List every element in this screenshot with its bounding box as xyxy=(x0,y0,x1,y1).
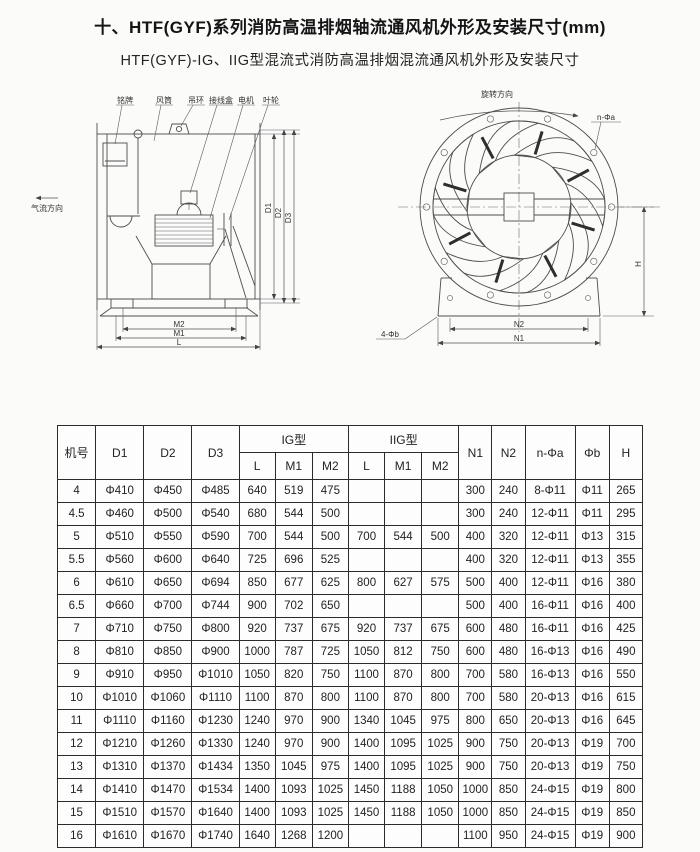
table-cell: 400 xyxy=(459,526,492,549)
table-cell: 12-Φ11 xyxy=(525,503,575,526)
bolt-holes-label: n-Φa xyxy=(597,113,615,122)
table-cell: 575 xyxy=(422,572,459,595)
table-cell: Φ1640 xyxy=(192,802,239,825)
table-cell: 900 xyxy=(312,710,348,733)
table-cell: 519 xyxy=(275,480,312,503)
table-row: 6Φ610Φ650Φ69485067762580062757550040012-… xyxy=(58,572,643,595)
table-cell: 6.5 xyxy=(58,595,96,618)
table-cell: 680 xyxy=(239,503,275,526)
table-cell: Φ1610 xyxy=(96,825,144,848)
table-cell: 650 xyxy=(312,595,348,618)
table-cell: Φ19 xyxy=(575,733,609,756)
table-row: 4.5Φ460Φ500Φ54068054450030024012-Φ11Φ112… xyxy=(58,503,643,526)
table-cell: Φ485 xyxy=(192,480,239,503)
page-title: 十、HTF(GYF)系列消防高温排烟轴流通风机外形及安装尺寸(mm) xyxy=(0,0,700,38)
diameter-dimensions: D1 D2 D3 xyxy=(255,130,300,303)
col-d3: D3 xyxy=(192,426,239,480)
table-cell: Φ660 xyxy=(96,595,144,618)
table-cell xyxy=(422,480,459,503)
center-lines xyxy=(398,102,660,332)
table-cell: 1050 xyxy=(422,779,459,802)
table-cell: Φ1010 xyxy=(192,664,239,687)
table-cell: 920 xyxy=(348,618,384,641)
table-cell: 500 xyxy=(459,572,492,595)
table-cell: 1100 xyxy=(348,664,384,687)
table-cell: 750 xyxy=(312,664,348,687)
table-cell: 737 xyxy=(275,618,312,641)
table-cell: 615 xyxy=(609,687,642,710)
table-cell: 1045 xyxy=(385,710,422,733)
table-cell: 490 xyxy=(609,641,642,664)
nameplate-label: 铭牌 xyxy=(117,95,133,105)
table-cell: 970 xyxy=(275,710,312,733)
table-cell: Φ700 xyxy=(144,595,192,618)
col-h: H xyxy=(609,426,642,480)
dim-l: L xyxy=(177,338,182,347)
table-cell: 1350 xyxy=(239,756,275,779)
dim-h: H xyxy=(634,261,643,267)
col-iig-m2: M2 xyxy=(422,453,459,480)
table-cell: 500 xyxy=(312,503,348,526)
foot-hole-callout: 4-Φb xyxy=(376,317,437,339)
table-cell: 1200 xyxy=(312,825,348,848)
table-cell: 550 xyxy=(609,664,642,687)
table-cell: 8 xyxy=(58,641,96,664)
table-cell: Φ410 xyxy=(96,480,144,503)
col-ig-m1: M1 xyxy=(275,453,312,480)
table-cell: 12 xyxy=(58,733,96,756)
table-cell: 425 xyxy=(609,618,642,641)
dim-m2: M2 xyxy=(173,320,185,329)
airflow-direction: 气流方向 xyxy=(31,198,63,213)
table-cell: 1100 xyxy=(348,687,384,710)
table-cell: Φ850 xyxy=(144,641,192,664)
table-cell: 16-Φ11 xyxy=(525,618,575,641)
col-ig-m2: M2 xyxy=(312,453,348,480)
table-cell: 400 xyxy=(459,549,492,572)
col-n2: N2 xyxy=(492,426,525,480)
table-cell: 24-Φ15 xyxy=(525,825,575,848)
table-cell: Φ810 xyxy=(96,641,144,664)
table-cell xyxy=(348,825,384,848)
table-cell xyxy=(348,480,384,503)
table-cell: 4.5 xyxy=(58,503,96,526)
table-cell: 13 xyxy=(58,756,96,779)
table-cell: 677 xyxy=(275,572,312,595)
table-cell: 20-Φ13 xyxy=(525,710,575,733)
col-d2: D2 xyxy=(144,426,192,480)
length-dimensions: M2 M1 L xyxy=(97,308,260,350)
table-cell: 320 xyxy=(492,549,525,572)
table-cell xyxy=(385,595,422,618)
col-iig-m1: M1 xyxy=(385,453,422,480)
table-cell: Φ1210 xyxy=(96,733,144,756)
table-cell: Φ640 xyxy=(192,549,239,572)
airflow-label: 气流方向 xyxy=(31,203,63,213)
table-cell: 20-Φ13 xyxy=(525,756,575,779)
table-cell: Φ910 xyxy=(96,664,144,687)
table-cell: 1025 xyxy=(422,756,459,779)
col-d1: D1 xyxy=(96,426,144,480)
diffuser-cone xyxy=(225,226,255,298)
dim-d1: D1 xyxy=(264,202,273,213)
table-cell: 675 xyxy=(422,618,459,641)
table-cell xyxy=(422,549,459,572)
table-cell: 1000 xyxy=(239,641,275,664)
table-cell: Φ1434 xyxy=(192,756,239,779)
table-row: 14Φ1410Φ1470Φ153414001093102514501188105… xyxy=(58,779,643,802)
table-body: 4Φ410Φ450Φ4856405194753002408-Φ11Φ112654… xyxy=(58,480,643,848)
impeller-label: 叶轮 xyxy=(263,95,279,105)
table-cell: Φ600 xyxy=(144,549,192,572)
table-cell: Φ694 xyxy=(192,572,239,595)
table-cell: 544 xyxy=(385,526,422,549)
table-cell: 1000 xyxy=(459,802,492,825)
table-cell: 737 xyxy=(385,618,422,641)
table-cell: Φ1160 xyxy=(144,710,192,733)
table-row: 11Φ1110Φ1160Φ123012409709001340104597580… xyxy=(58,710,643,733)
table-cell: 1340 xyxy=(348,710,384,733)
fan-casing xyxy=(97,123,260,310)
table-cell: 650 xyxy=(492,710,525,733)
table-cell: 700 xyxy=(459,664,492,687)
table-cell: 1240 xyxy=(239,733,275,756)
table-cell: 400 xyxy=(609,595,642,618)
table-cell: 800 xyxy=(312,687,348,710)
table-cell: Φ1260 xyxy=(144,733,192,756)
table-cell: Φ19 xyxy=(575,779,609,802)
table-cell: Φ1060 xyxy=(144,687,192,710)
table-cell: 700 xyxy=(609,733,642,756)
table-row: 12Φ1210Φ1260Φ133012409709001400109510259… xyxy=(58,733,643,756)
table-cell: Φ11 xyxy=(575,503,609,526)
table-cell: 12-Φ11 xyxy=(525,549,575,572)
table-cell: 700 xyxy=(348,526,384,549)
table-cell: 20-Φ13 xyxy=(525,733,575,756)
table-cell: 14 xyxy=(58,779,96,802)
table-cell: 544 xyxy=(275,503,312,526)
table-cell xyxy=(422,595,459,618)
table-cell: 900 xyxy=(312,733,348,756)
table-cell xyxy=(422,825,459,848)
table-cell xyxy=(348,549,384,572)
table-cell: 1188 xyxy=(385,779,422,802)
table-cell: Φ1010 xyxy=(96,687,144,710)
table-cell: 1025 xyxy=(422,733,459,756)
table-cell xyxy=(385,825,422,848)
table-cell: 480 xyxy=(492,641,525,664)
duct-label: 风筒 xyxy=(156,95,172,105)
table-cell: 1025 xyxy=(312,802,348,825)
table-cell: 600 xyxy=(459,641,492,664)
table-cell: Φ1410 xyxy=(96,779,144,802)
table-row: 4Φ410Φ450Φ4856405194753002408-Φ11Φ11265 xyxy=(58,480,643,503)
height-dimension: H xyxy=(603,207,654,316)
table-cell: 850 xyxy=(609,802,642,825)
lifting-lug xyxy=(134,124,189,138)
table-cell: 702 xyxy=(275,595,312,618)
dim-d3: D3 xyxy=(284,212,293,223)
table-cell: 1093 xyxy=(275,802,312,825)
col-machine-no: 机号 xyxy=(58,426,96,480)
table-cell: 9 xyxy=(58,664,96,687)
table-cell: 500 xyxy=(422,526,459,549)
table-cell: 970 xyxy=(275,733,312,756)
table-row: 8Φ810Φ850Φ900100078772510508127506004801… xyxy=(58,641,643,664)
table-cell: 1093 xyxy=(275,779,312,802)
table-cell: Φ1534 xyxy=(192,779,239,802)
table-cell: 16-Φ11 xyxy=(525,595,575,618)
table-cell: Φ16 xyxy=(575,572,609,595)
table-cell: 870 xyxy=(275,687,312,710)
table-cell: 15 xyxy=(58,802,96,825)
table-cell: Φ560 xyxy=(96,549,144,572)
table-cell: 8-Φ11 xyxy=(525,480,575,503)
table-cell: 900 xyxy=(609,825,642,848)
front-view-drawing: 旋转方向 xyxy=(358,86,700,368)
base-dimensions: N2 N1 xyxy=(438,318,600,346)
table-cell: 750 xyxy=(609,756,642,779)
rotation-label: 旋转方向 xyxy=(481,89,513,99)
dim-n1: N1 xyxy=(514,334,525,343)
junction-box-label: 接线盒 xyxy=(209,95,233,105)
table-cell: 24-Φ15 xyxy=(525,779,575,802)
table-cell: 380 xyxy=(609,572,642,595)
table-cell: 16-Φ13 xyxy=(525,664,575,687)
table-cell xyxy=(385,480,422,503)
table-cell: 900 xyxy=(459,756,492,779)
table-cell: 900 xyxy=(459,733,492,756)
support-base xyxy=(100,236,258,316)
table-cell: 725 xyxy=(312,641,348,664)
table-cell: Φ19 xyxy=(575,825,609,848)
table-cell: 1268 xyxy=(275,825,312,848)
table-cell: 544 xyxy=(275,526,312,549)
table-cell: 1000 xyxy=(459,779,492,802)
table-cell: Φ1230 xyxy=(192,710,239,733)
table-cell: Φ950 xyxy=(144,664,192,687)
table-cell: 870 xyxy=(385,687,422,710)
table-cell: 1400 xyxy=(348,756,384,779)
table-cell: 12-Φ11 xyxy=(525,526,575,549)
table-cell: 1050 xyxy=(348,641,384,664)
table-cell: 950 xyxy=(492,825,525,848)
table-row: 9Φ910Φ950Φ101010508207501100870800700580… xyxy=(58,664,643,687)
table-cell: 355 xyxy=(609,549,642,572)
table-cell: Φ1570 xyxy=(144,802,192,825)
table-cell: Φ16 xyxy=(575,710,609,733)
table-cell: 24-Φ15 xyxy=(525,802,575,825)
table-cell: 625 xyxy=(312,572,348,595)
table-cell: 640 xyxy=(239,480,275,503)
table-cell: Φ1310 xyxy=(96,756,144,779)
table-cell: 1400 xyxy=(348,733,384,756)
table-cell: 1450 xyxy=(348,779,384,802)
side-view-drawing: 铭牌 风筒 吊环 接线盒 电机 叶轮 xyxy=(28,86,360,368)
table-cell: 5 xyxy=(58,526,96,549)
table-cell: 800 xyxy=(422,687,459,710)
table-row: 13Φ1310Φ1370Φ143413501045975140010951025… xyxy=(58,756,643,779)
table-cell: Φ650 xyxy=(144,572,192,595)
table-cell xyxy=(348,503,384,526)
table-cell: 4 xyxy=(58,480,96,503)
table-cell: Φ1370 xyxy=(144,756,192,779)
table-cell: 1100 xyxy=(459,825,492,848)
table-cell: 500 xyxy=(459,595,492,618)
table-cell xyxy=(385,549,422,572)
table-cell: Φ550 xyxy=(144,526,192,549)
dim-n2: N2 xyxy=(514,320,525,329)
table-cell: Φ710 xyxy=(96,618,144,641)
table-cell: 750 xyxy=(492,733,525,756)
table-row: 5.5Φ560Φ600Φ64072569652540032012-Φ11Φ133… xyxy=(58,549,643,572)
table-cell: 645 xyxy=(609,710,642,733)
table-cell: 900 xyxy=(239,595,275,618)
table-cell: 240 xyxy=(492,503,525,526)
table-cell: 580 xyxy=(492,664,525,687)
table-row: 16Φ1610Φ1670Φ1740164012681200110095024-Φ… xyxy=(58,825,643,848)
drawings-row: 铭牌 风筒 吊环 接线盒 电机 叶轮 xyxy=(0,86,700,368)
table-cell: 300 xyxy=(459,503,492,526)
table-cell: 850 xyxy=(239,572,275,595)
table-cell: 1400 xyxy=(239,779,275,802)
table-cell: Φ450 xyxy=(144,480,192,503)
table-cell: Φ590 xyxy=(192,526,239,549)
table-cell: Φ16 xyxy=(575,664,609,687)
table-cell: 480 xyxy=(492,618,525,641)
col-n1: N1 xyxy=(459,426,492,480)
table-cell: Φ500 xyxy=(144,503,192,526)
table-cell: 850 xyxy=(492,779,525,802)
table-cell: 5.5 xyxy=(58,549,96,572)
col-iig-l: L xyxy=(348,453,384,480)
motor xyxy=(155,203,213,246)
table-row: 7Φ710Φ750Φ80092073767592073767560048016-… xyxy=(58,618,643,641)
table-cell: Φ610 xyxy=(96,572,144,595)
col-phi-b: Φb xyxy=(575,426,609,480)
table-cell: 1640 xyxy=(239,825,275,848)
table-cell: Φ16 xyxy=(575,618,609,641)
table-cell: 400 xyxy=(492,572,525,595)
table-cell: Φ540 xyxy=(192,503,239,526)
document-page: 十、HTF(GYF)系列消防高温排烟轴流通风机外形及安装尺寸(mm) HTF(G… xyxy=(0,0,700,852)
table-cell: 400 xyxy=(492,595,525,618)
table-cell xyxy=(348,595,384,618)
junction-box xyxy=(181,191,197,210)
table-cell: 1240 xyxy=(239,710,275,733)
table-cell: 750 xyxy=(492,756,525,779)
col-n-phi-a: n-Φa xyxy=(525,426,575,480)
table-cell: 500 xyxy=(312,526,348,549)
table-cell: 1095 xyxy=(385,756,422,779)
table-cell: Φ1670 xyxy=(144,825,192,848)
table-cell: 750 xyxy=(422,641,459,664)
table-cell: 16-Φ13 xyxy=(525,641,575,664)
table-cell: 800 xyxy=(348,572,384,595)
table-cell: 1045 xyxy=(275,756,312,779)
table-cell: 975 xyxy=(422,710,459,733)
table-cell: 300 xyxy=(459,480,492,503)
table-cell: 1450 xyxy=(348,802,384,825)
table-cell: 870 xyxy=(385,664,422,687)
table-cell: Φ19 xyxy=(575,802,609,825)
table-cell: Φ1110 xyxy=(192,687,239,710)
table-cell: 240 xyxy=(492,480,525,503)
table-row: 10Φ1010Φ1060Φ111011008708001100870800700… xyxy=(58,687,643,710)
table-cell: Φ13 xyxy=(575,526,609,549)
table-cell: 7 xyxy=(58,618,96,641)
table-cell: 1050 xyxy=(422,802,459,825)
table-cell: 800 xyxy=(422,664,459,687)
table-cell: 580 xyxy=(492,687,525,710)
table-cell: 696 xyxy=(275,549,312,572)
dim-m1: M1 xyxy=(173,329,185,338)
motor-label: 电机 xyxy=(238,95,254,105)
table-cell: Φ460 xyxy=(96,503,144,526)
table-cell: Φ1740 xyxy=(192,825,239,848)
table-cell: 12-Φ11 xyxy=(525,572,575,595)
table-cell: 320 xyxy=(492,526,525,549)
table-row: 15Φ1510Φ1570Φ164014001093102514501188105… xyxy=(58,802,643,825)
table-cell: 850 xyxy=(492,802,525,825)
table-cell: 600 xyxy=(459,618,492,641)
table-cell: Φ1330 xyxy=(192,733,239,756)
col-group-iig: IIG型 xyxy=(348,426,458,453)
table-cell xyxy=(385,503,422,526)
table-cell: 920 xyxy=(239,618,275,641)
table-cell: Φ16 xyxy=(575,595,609,618)
table-cell: Φ1110 xyxy=(96,710,144,733)
table-cell: 295 xyxy=(609,503,642,526)
table-cell: 700 xyxy=(239,526,275,549)
table-cell: 1025 xyxy=(312,779,348,802)
table-cell: 525 xyxy=(312,549,348,572)
table-cell: 1400 xyxy=(239,802,275,825)
table-cell: Φ744 xyxy=(192,595,239,618)
table-row: 5Φ510Φ550Φ59070054450070054450040032012-… xyxy=(58,526,643,549)
table-cell: Φ1510 xyxy=(96,802,144,825)
col-ig-l: L xyxy=(239,453,275,480)
table-cell: 16 xyxy=(58,825,96,848)
table-cell: Φ750 xyxy=(144,618,192,641)
table-cell: 10 xyxy=(58,687,96,710)
lifting-ring-label: 吊环 xyxy=(188,96,204,105)
table-cell: Φ11 xyxy=(575,480,609,503)
table-cell: 475 xyxy=(312,480,348,503)
table-cell: 1050 xyxy=(239,664,275,687)
table-cell: 812 xyxy=(385,641,422,664)
inlet-bell xyxy=(107,138,140,227)
table-cell: 800 xyxy=(609,779,642,802)
table-cell: 1188 xyxy=(385,802,422,825)
table-cell: Φ900 xyxy=(192,641,239,664)
dimension-table: 机号 D1 D2 D3 IG型 IIG型 N1 N2 n-Φa Φb H L M… xyxy=(57,425,643,848)
table-cell: Φ13 xyxy=(575,549,609,572)
col-group-ig: IG型 xyxy=(239,426,348,453)
table-cell: Φ19 xyxy=(575,756,609,779)
table-cell: 675 xyxy=(312,618,348,641)
table-cell: 6 xyxy=(58,572,96,595)
table-cell: 315 xyxy=(609,526,642,549)
table-cell: Φ1470 xyxy=(144,779,192,802)
table-cell: 1100 xyxy=(239,687,275,710)
table-cell: 11 xyxy=(58,710,96,733)
table-cell: Φ800 xyxy=(192,618,239,641)
table-cell: 975 xyxy=(312,756,348,779)
table-cell: 820 xyxy=(275,664,312,687)
table-cell: 627 xyxy=(385,572,422,595)
table-cell: Φ510 xyxy=(96,526,144,549)
